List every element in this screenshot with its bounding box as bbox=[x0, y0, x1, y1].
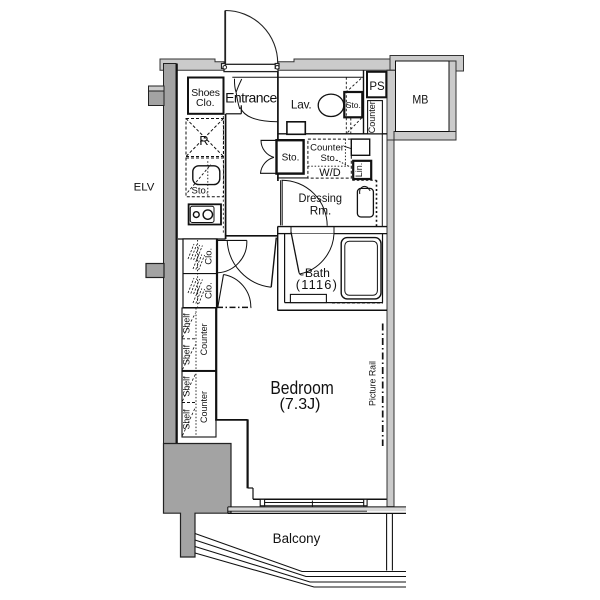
svg-text:Counter: Counter bbox=[199, 391, 209, 423]
svg-text:Picture Rail: Picture Rail bbox=[367, 361, 377, 406]
svg-text:Shelf: Shelf bbox=[181, 409, 191, 430]
svg-text:Clo.: Clo. bbox=[203, 248, 214, 265]
svg-text:W/D: W/D bbox=[319, 167, 340, 179]
svg-text:MB: MB bbox=[412, 93, 428, 107]
svg-text:Counter: Counter bbox=[199, 323, 209, 355]
svg-text:Balcony: Balcony bbox=[273, 531, 321, 546]
svg-text:Clo.: Clo. bbox=[203, 282, 214, 299]
svg-text:(7.3J): (7.3J) bbox=[280, 396, 321, 413]
svg-text:Lin.: Lin. bbox=[354, 163, 364, 178]
svg-text:Shelf: Shelf bbox=[181, 376, 191, 397]
svg-text:ELV: ELV bbox=[134, 181, 155, 193]
svg-text:Sto.: Sto. bbox=[192, 186, 209, 197]
svg-text:Sto.: Sto. bbox=[282, 153, 300, 164]
svg-text:Counter: Counter bbox=[367, 101, 377, 133]
svg-text:Lav.: Lav. bbox=[291, 97, 312, 111]
svg-text:R: R bbox=[199, 133, 208, 148]
svg-text:Sto.: Sto. bbox=[321, 153, 338, 164]
svg-text:Sto.: Sto. bbox=[346, 100, 361, 110]
svg-text:Entrance: Entrance bbox=[225, 89, 277, 105]
svg-text:(1116): (1116) bbox=[296, 277, 338, 292]
svg-text:Bedroom: Bedroom bbox=[270, 377, 334, 398]
svg-text:PS: PS bbox=[369, 81, 385, 93]
svg-text:Shelf: Shelf bbox=[181, 313, 191, 334]
svg-text:Shelf: Shelf bbox=[181, 344, 191, 365]
svg-text:Rm.: Rm. bbox=[310, 204, 332, 218]
svg-text:Clo.: Clo. bbox=[196, 98, 214, 109]
